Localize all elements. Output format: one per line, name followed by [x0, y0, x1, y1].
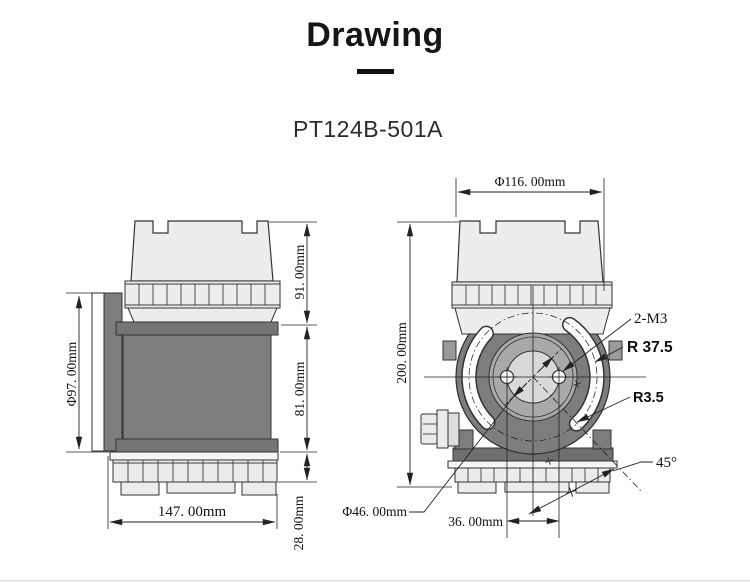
body-top-lip: [116, 322, 278, 335]
side-lug-left: [443, 341, 456, 360]
top-cap: [131, 221, 273, 281]
page-title: Drawing: [306, 16, 444, 54]
callout-label-r35: R3.5: [633, 390, 664, 406]
technical-drawing-canvas: Drawing PT124B-501A Φ97. 00mm: [0, 0, 750, 583]
dim-label-phi46: Φ46. 00mm: [342, 504, 407, 519]
flange-face: [92, 293, 105, 451]
body-bottom-lip: [116, 439, 278, 452]
base-tab: [242, 482, 276, 495]
base-plate: [448, 461, 617, 468]
dim-hole-spacing: 36. 00mm: [448, 514, 559, 529]
dim-label-phi116: Φ116. 00mm: [495, 174, 566, 189]
side-view: Φ97. 00mm 91. 00mm 81. 00mm 28. 00mm 147…: [64, 221, 317, 550]
body-shoulder-right: [593, 430, 611, 449]
dim-label-147mm: 147. 00mm: [158, 504, 227, 520]
base-plate: [110, 452, 278, 460]
body-housing: [123, 335, 271, 439]
base-rib-band: [455, 468, 610, 482]
flange-plate: [104, 293, 122, 451]
base-tab: [121, 482, 159, 495]
cap-skirt: [128, 308, 277, 322]
base-tab: [576, 482, 609, 493]
top-cap: [457, 221, 603, 282]
model-number: PT124B-501A: [293, 116, 443, 142]
cap-rib-band: [452, 282, 612, 308]
drawing-page: Drawing PT124B-501A Φ97. 00mm: [0, 0, 750, 583]
dim-label-36mm: 36. 00mm: [448, 514, 503, 529]
bottom-divider: [0, 580, 750, 582]
callout-label-2m3: 2-M3: [634, 311, 667, 327]
cap-rib-band: [125, 281, 280, 308]
front-view: Φ116. 00mm 200. 00mm 36. 00mm Φ46. 00mm: [342, 174, 677, 538]
base-tab: [167, 482, 235, 493]
dim-heights-column: 91. 00mm 81. 00mm 28. 00mm: [269, 222, 317, 550]
dim-label-phi97: Φ97. 00mm: [64, 341, 79, 406]
dim-label-200mm: 200. 00mm: [394, 322, 409, 384]
dim-label-91mm: 91. 00mm: [292, 244, 307, 299]
base-tab: [505, 482, 569, 492]
base-tab: [458, 482, 496, 493]
title-underline: [357, 69, 394, 74]
cable-gland: [421, 410, 459, 448]
dim-label-81mm: 81. 00mm: [292, 361, 307, 416]
dim-label-28mm: 28. 00mm: [291, 495, 306, 550]
side-lug-right: [609, 341, 622, 360]
dim-label-45deg: 45°: [656, 455, 677, 471]
callout-label-r375: R 37.5: [627, 339, 673, 356]
